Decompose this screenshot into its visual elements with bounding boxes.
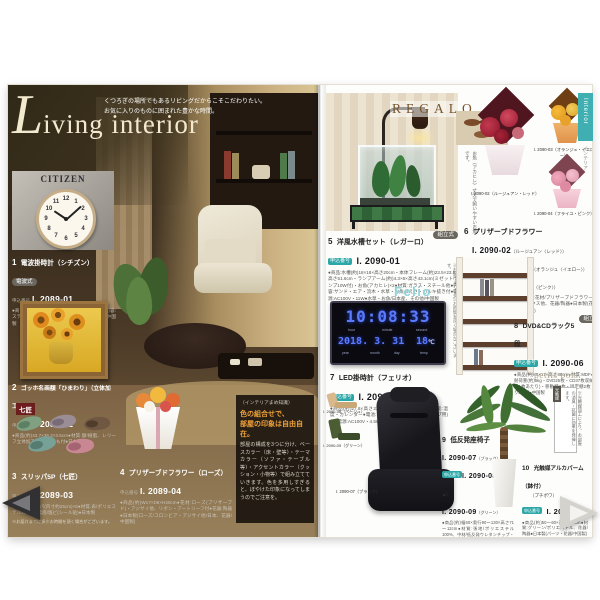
armchair xyxy=(194,205,272,307)
item-number: 4 xyxy=(120,468,124,477)
led-label-minute: minute xyxy=(382,328,393,332)
tagline-line1: くつろぎの場所でもあるリビングだからこそこだわりたい。 xyxy=(104,97,304,107)
books xyxy=(485,280,489,296)
item-number: 3 xyxy=(12,472,16,481)
tips-tag: （インテリアまめ知識） xyxy=(240,399,310,406)
flower-red-label: I. 2090-02（ルージュアン・レッド） xyxy=(462,191,548,197)
led-label-temp: temp xyxy=(420,351,428,355)
chair-beige-thumb xyxy=(326,391,362,408)
slipper-green xyxy=(15,414,43,433)
led-label-year: year xyxy=(342,351,349,355)
slipper-pink xyxy=(65,438,94,455)
order-label: 申込番号 xyxy=(120,490,138,495)
item-number: 6 xyxy=(464,227,468,236)
interior-tips-box: （インテリアまめ知識） 色の組合せで、 部屋の印象は自由自在。 部屋の構成を3つ… xyxy=(236,395,314,523)
assembly-badge: 組立式 xyxy=(579,315,592,323)
minute-hand xyxy=(66,206,81,220)
headrest xyxy=(390,387,430,402)
led-time: 10:08:33 xyxy=(332,307,444,326)
order-label-chip: 申込番号 xyxy=(328,258,352,265)
plant-note-box: 光触媒 ※光触媒加工により、お部屋の消臭・抗菌に効果を発揮します。 xyxy=(554,387,577,453)
led-temp: 18℃ xyxy=(416,336,435,347)
rose xyxy=(494,129,509,144)
variant-label: （オランジュ〈イエロー〉） xyxy=(532,267,588,272)
interior-tab-sub-label: インテリア xyxy=(581,146,588,170)
rose xyxy=(560,181,571,192)
item-number: 2 xyxy=(12,383,16,392)
item-number: 10 xyxy=(522,465,529,472)
item-number: 9 xyxy=(442,437,446,444)
rose xyxy=(560,115,571,126)
item-title: 光触媒アルカパーム（鉢付） xyxy=(522,466,584,490)
led-label-day: day xyxy=(394,351,400,355)
item-number: 5 xyxy=(328,237,332,246)
item-title: スリッパ5P（七匠） xyxy=(21,474,82,481)
interior-tab-label: Interior xyxy=(582,98,588,125)
item-number: 1 xyxy=(12,258,16,267)
item-title: プリザーブドフラワー xyxy=(473,229,543,236)
led-label-hour: hour xyxy=(348,328,355,332)
plant-note: ※光触媒加工により、お部屋の消臭・抗菌に効果を発揮します。 xyxy=(564,391,583,449)
right-page: REGALO お魚（アカヒレ）丈夫で飼いやすいお魚です。 5 洋風水槽セット（レ… xyxy=(318,85,592,537)
catalog-spread: Living interior くつろぎの場所でもあるリビングだからこそこだわり… xyxy=(8,85,592,537)
item-code: I. 2089-04 xyxy=(140,486,181,496)
item-number: 7 xyxy=(330,373,334,382)
item-desc: ●商品(約)幅60×奥行90～130×高さ71～12cm●材質:張地/ポリエステ… xyxy=(442,520,514,537)
led-label-second: second xyxy=(416,328,427,332)
item-title: LED掛時計（フェリオ） xyxy=(339,375,416,382)
rose xyxy=(512,127,524,139)
wall-clock-photo: CITIZEN 12 1 2 3 4 5 6 7 8 9 10 11 xyxy=(12,171,114,250)
slipper-brand: 七匠 xyxy=(19,407,32,414)
title-script-letter: L xyxy=(12,85,43,146)
petits-pois-logo: petits pois. xyxy=(534,371,581,381)
felio-logo: Felio xyxy=(394,284,432,299)
prev-page-arrow-icon[interactable] xyxy=(2,486,40,520)
radio-badge: 電波式 xyxy=(12,278,37,286)
variant-label: （ルージュアン〈レッド〉） xyxy=(511,249,567,254)
books xyxy=(480,279,484,296)
tagline-line2: お気に入りのものに囲まれた豊かな時間。 xyxy=(104,107,304,117)
citizen-logo: CITIZEN xyxy=(12,174,114,184)
item-title: 電波掛時計（シチズン） xyxy=(21,260,94,267)
item-code: I. 2090-02 xyxy=(472,246,511,255)
item-desc: ●商品(約)W17×D8×H20cm●花材:ローズ(プリザーブド)・アジサイ他、… xyxy=(120,500,232,526)
item-title: 洋風水槽セット（レガーロ） xyxy=(337,239,428,246)
flower-box-photo xyxy=(120,373,192,459)
item-number: 8 xyxy=(514,321,518,330)
order-label-chip: 申込番号 xyxy=(522,507,542,514)
slipper-teal xyxy=(27,434,57,454)
led-clock-photo: 10:08:33 hour minute second 2018. 3. 31 … xyxy=(330,301,446,365)
interior-tab[interactable]: Interior xyxy=(578,93,593,141)
tips-heading1: 色の組合せで、 xyxy=(240,409,310,419)
center-fold xyxy=(314,85,326,537)
assembly-badge: 組立式 xyxy=(433,231,458,239)
sunflower-art-photo xyxy=(20,301,108,379)
tank-stand xyxy=(350,205,444,222)
rose xyxy=(500,109,518,127)
vase xyxy=(49,342,73,364)
slipper-brown xyxy=(84,416,111,431)
slipper-brand-plate: 七匠 xyxy=(16,403,35,415)
item-title: プリザーブドフラワー（ローズ） xyxy=(129,470,227,477)
trunk xyxy=(500,427,508,461)
books xyxy=(490,279,494,296)
item-4: 4 プリザーブドフラワー（ローズ） 申込番号I. 2089-04 ●商品(約)W… xyxy=(120,462,238,526)
chair-black-label: I. 2090-07（ブラック） xyxy=(336,489,406,495)
led-label-month: month xyxy=(370,351,380,355)
clock-hub xyxy=(64,217,68,221)
item-code: I. 2090-06 xyxy=(542,358,583,368)
ribbon xyxy=(156,407,160,449)
next-page-arrow-icon[interactable] xyxy=(560,496,598,530)
rose xyxy=(566,169,579,182)
slippers-photo xyxy=(14,415,118,463)
white-pot xyxy=(490,459,518,507)
led-date: 2018. 3. 31 xyxy=(338,336,404,347)
wall-clock-face: 12 1 2 3 4 5 6 7 8 9 10 11 xyxy=(36,189,96,249)
slipper-mauve xyxy=(49,413,77,429)
books xyxy=(479,350,483,365)
tagline: くつろぎの場所でもあるリビングだからこそこだわりたい。 お気に入りのものに囲まれ… xyxy=(104,97,304,117)
order-label-chip: 申込番号 xyxy=(514,360,538,367)
flower-red-photo xyxy=(468,93,542,189)
glass-tank xyxy=(358,145,436,209)
item-5: 5 洋風水槽セット（レガーロ） 組立式 申込番号 I. 2090-01 ●商品:… xyxy=(328,231,458,302)
plant-note-tag: 光触媒 xyxy=(553,386,561,402)
books xyxy=(474,349,478,365)
left-page: Living interior くつろぎの場所でもあるリビングだからこそこだわり… xyxy=(8,85,318,537)
item-desc: ●商品:水槽(約)18×18×高さ20cm・本体フレーム(約)23.5×23.5… xyxy=(328,270,458,302)
item-code: I. 2090-01 xyxy=(356,256,400,266)
tips-heading2: 部屋の印象は自由自在。 xyxy=(240,419,310,439)
tips-body: 部屋の構成を3つに分け、ベースカラー（床・壁等）・テーマカラー（ソファ・テーブル… xyxy=(240,442,310,502)
chair-green-thumb xyxy=(326,419,362,441)
flower-pink-label: I. 2090-04（フライユ・ピンク） xyxy=(532,211,592,217)
coffee-table xyxy=(218,353,314,379)
item-title: DVD&CDラック5段 xyxy=(514,323,574,348)
